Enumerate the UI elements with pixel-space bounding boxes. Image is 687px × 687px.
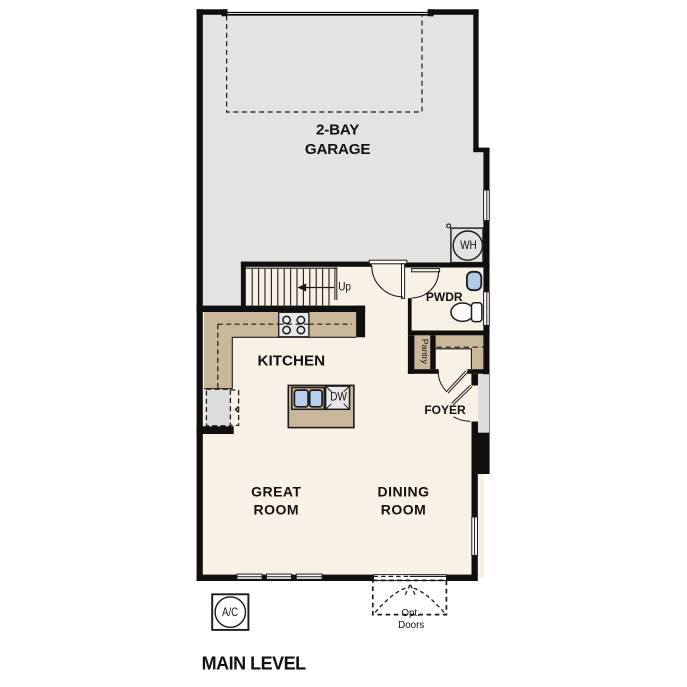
svg-text:DINING: DINING	[378, 484, 430, 500]
svg-text:MAIN LEVEL: MAIN LEVEL	[202, 654, 307, 674]
svg-text:Doors: Doors	[398, 620, 424, 631]
svg-text:Pantry: Pantry	[420, 339, 430, 365]
svg-text:PWDR: PWDR	[426, 290, 463, 304]
svg-text:ROOM: ROOM	[381, 502, 427, 518]
svg-text:WH: WH	[460, 238, 477, 252]
svg-text:GREAT: GREAT	[251, 484, 301, 500]
svg-text:ROOM: ROOM	[254, 502, 300, 518]
svg-text:GARAGE: GARAGE	[305, 141, 371, 158]
svg-text:A/C: A/C	[222, 605, 239, 619]
svg-text:KITCHEN: KITCHEN	[258, 352, 326, 369]
svg-text:DW: DW	[330, 390, 347, 404]
svg-text:Up: Up	[338, 280, 351, 294]
svg-text:2-BAY: 2-BAY	[316, 121, 359, 138]
svg-text:FOYER: FOYER	[424, 403, 466, 417]
svg-text:Opt.: Opt.	[401, 608, 420, 619]
